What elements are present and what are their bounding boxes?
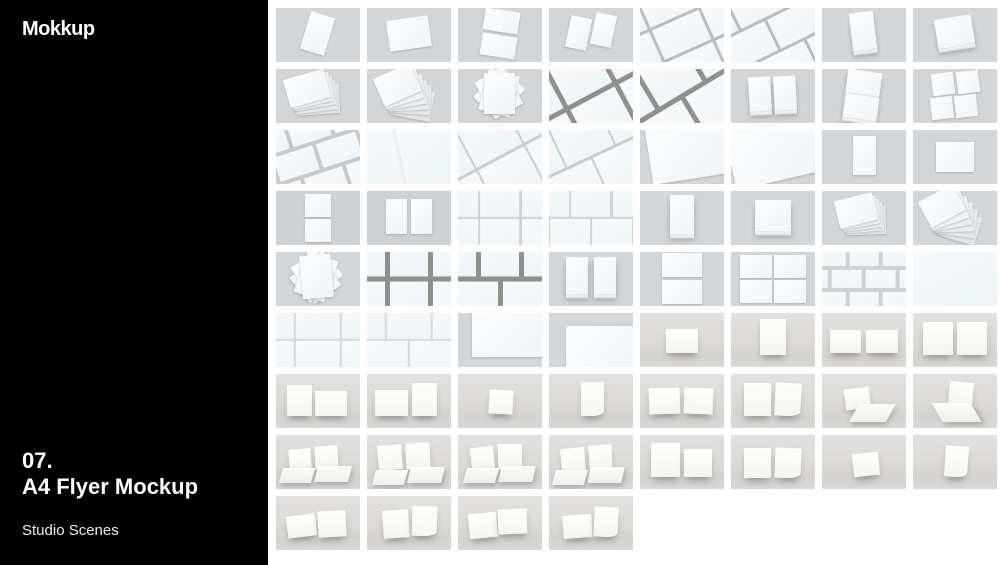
mockup-thumbnail[interactable]	[640, 130, 724, 184]
paper-sheet	[483, 8, 521, 35]
mockup-thumbnail[interactable]	[640, 8, 724, 62]
paper-sheet	[684, 449, 713, 477]
paper-sheet	[649, 387, 681, 415]
paper-sheet	[774, 448, 801, 479]
mockup-thumbnail[interactable]	[367, 374, 451, 428]
mockup-thumbnail[interactable]	[458, 130, 542, 184]
paper-sheet	[913, 252, 997, 306]
mockup-thumbnail[interactable]	[731, 252, 815, 306]
mockup-thumbnail[interactable]	[822, 435, 906, 489]
paper-sheet	[853, 136, 876, 175]
paper-sheet	[944, 446, 969, 478]
paper-sheet	[755, 200, 792, 231]
mockup-thumbnail[interactable]	[458, 435, 542, 489]
sheet-grid	[276, 313, 360, 367]
paper-sheet	[929, 95, 953, 119]
mockup-thumbnail[interactable]	[731, 191, 815, 245]
mockup-thumbnail[interactable]	[367, 435, 451, 489]
paper-sheet	[299, 12, 334, 57]
paper-sheet	[462, 468, 499, 483]
mockup-thumbnail[interactable]	[731, 374, 815, 428]
mockup-thumbnail[interactable]	[913, 69, 997, 123]
mockup-thumbnail[interactable]	[458, 191, 542, 245]
paper-sheet	[470, 446, 495, 471]
mockup-thumbnail[interactable]	[549, 374, 633, 428]
paper-sheet	[954, 94, 978, 118]
paper-sheet	[407, 467, 444, 483]
mockup-thumbnail[interactable]	[640, 374, 724, 428]
mockup-thumbnail[interactable]	[458, 496, 542, 550]
paper-sheet	[375, 390, 409, 416]
paper-sheet	[484, 73, 515, 115]
paper-sheet	[830, 330, 862, 353]
mockup-thumbnail[interactable]	[913, 313, 997, 367]
mockup-thumbnail[interactable]	[640, 69, 724, 123]
mockup-thumbnail[interactable]	[276, 191, 360, 245]
mockup-thumbnail[interactable]	[913, 191, 997, 245]
mockup-thumbnail[interactable]	[731, 130, 815, 184]
page-subtitle: Studio Scenes	[22, 522, 198, 539]
mockup-thumbnail[interactable]	[913, 8, 997, 62]
mockup-thumbnail[interactable]	[913, 252, 997, 306]
paper-sheet	[740, 255, 772, 278]
sheet-grid	[549, 191, 633, 245]
mockup-thumbnail[interactable]	[549, 8, 633, 62]
paper-sheet	[498, 508, 528, 534]
mockup-thumbnail[interactable]	[640, 252, 724, 306]
paper-sheet	[931, 72, 955, 96]
paper-sheet	[852, 452, 880, 477]
mockup-thumbnail[interactable]	[276, 252, 360, 306]
mockup-thumbnail[interactable]	[549, 313, 633, 367]
paper-sheet	[382, 509, 410, 539]
mockup-thumbnail[interactable]	[822, 8, 906, 62]
mockup-thumbnail[interactable]	[276, 69, 360, 123]
paper-sheet	[588, 467, 625, 483]
sheet-grid	[549, 130, 633, 184]
paper-sheet	[923, 322, 953, 355]
mockup-thumbnail[interactable]	[549, 69, 633, 123]
paper-sheet	[849, 10, 877, 50]
paper-sheet	[560, 447, 585, 472]
paper-sheet	[565, 15, 592, 51]
paper-sheet	[299, 254, 334, 299]
mockup-thumbnail[interactable]	[640, 435, 724, 489]
paper-sheet	[498, 443, 522, 469]
paper-sheet	[315, 391, 346, 416]
paper-sheet	[590, 12, 617, 48]
paper-sheet	[552, 470, 588, 485]
paper-sheet	[372, 470, 408, 485]
paper-sheet	[581, 382, 604, 416]
mockup-thumbnail[interactable]	[731, 313, 815, 367]
paper-sheet	[644, 130, 724, 184]
paper-sheet	[594, 506, 619, 537]
paper-sheet	[563, 514, 593, 539]
paper-sheet	[936, 142, 975, 171]
paper-sheet	[589, 444, 613, 469]
paper-sheet	[931, 403, 981, 422]
paper-sheet	[773, 75, 797, 110]
paper-sheet	[498, 466, 535, 482]
paper-sheet	[412, 506, 438, 537]
paper-sheet	[662, 253, 702, 277]
paper-sheet	[472, 313, 542, 357]
paper-sheet	[934, 14, 975, 49]
mockup-thumbnail[interactable]	[822, 313, 906, 367]
mockup-thumbnail[interactable]	[276, 130, 360, 184]
paper-sheet	[488, 390, 514, 415]
paper-sheet	[279, 468, 316, 483]
paper-sheet	[760, 319, 785, 355]
paper-sheet	[468, 511, 498, 539]
paper-sheet	[305, 194, 332, 217]
sheet-grid	[549, 69, 633, 123]
paper-sheet	[411, 199, 432, 234]
mockup-gallery	[276, 8, 997, 550]
sidebar: Mokkup 07. A4 Flyer Mockup Studio Scenes	[0, 0, 268, 565]
mockup-thumbnail[interactable]	[913, 435, 997, 489]
brand-logo: Mokkup	[22, 18, 95, 41]
paper-sheet	[594, 257, 617, 294]
paper-sheet	[744, 448, 772, 478]
mockup-thumbnail[interactable]	[367, 130, 451, 184]
sheet-grid	[731, 8, 815, 62]
mockup-thumbnail[interactable]	[458, 69, 542, 123]
paper-sheet	[683, 388, 713, 415]
mockup-thumbnail[interactable]	[458, 252, 542, 306]
paper-sheet	[957, 322, 987, 355]
paper-sheet	[286, 514, 317, 539]
paper-sheet	[748, 77, 772, 112]
mockup-thumbnail[interactable]	[822, 191, 906, 245]
paper-sheet	[406, 442, 431, 469]
mockup-thumbnail[interactable]	[367, 191, 451, 245]
paper-sheet	[774, 383, 802, 417]
sheet-grid	[640, 8, 724, 62]
paper-sheet	[317, 510, 346, 537]
mockup-thumbnail[interactable]	[549, 496, 633, 550]
paper-sheet	[670, 195, 694, 234]
paper-sheet	[651, 443, 680, 476]
section-number: 07.	[22, 448, 198, 474]
mockup-thumbnail[interactable]	[549, 130, 633, 184]
paper-sheet	[744, 383, 772, 416]
title-block: 07. A4 Flyer Mockup Studio Scenes	[22, 448, 198, 539]
mockup-thumbnail[interactable]	[640, 191, 724, 245]
paper-sheet	[386, 199, 407, 234]
sheet-grid	[458, 252, 542, 306]
mockup-thumbnail[interactable]	[731, 69, 815, 123]
mockup-thumbnail[interactable]	[549, 435, 633, 489]
mockup-thumbnail[interactable]	[913, 130, 997, 184]
sheet-grid	[367, 252, 451, 306]
mockup-thumbnail[interactable]	[458, 374, 542, 428]
mockup-thumbnail[interactable]	[367, 252, 451, 306]
paper-sheet	[377, 444, 403, 471]
mockup-thumbnail[interactable]	[458, 313, 542, 367]
page-title: A4 Flyer Mockup	[22, 474, 198, 500]
mockup-thumbnail[interactable]	[276, 374, 360, 428]
sheet-grid	[640, 69, 724, 123]
mockup-thumbnail[interactable]	[640, 313, 724, 367]
mockup-thumbnail[interactable]	[276, 8, 360, 62]
paper-sheet	[479, 32, 517, 59]
mockup-thumbnail[interactable]	[276, 435, 360, 489]
paper-sheet	[955, 70, 979, 94]
mockup-thumbnail[interactable]	[367, 496, 451, 550]
mockup-thumbnail[interactable]	[367, 69, 451, 123]
mockup-thumbnail[interactable]	[276, 313, 360, 367]
mockup-thumbnail[interactable]	[822, 69, 906, 123]
paper-sheet	[386, 15, 432, 52]
paper-sheet	[314, 466, 352, 482]
paper-sheet	[846, 69, 883, 96]
sheet-grid	[276, 130, 360, 184]
mockup-thumbnail[interactable]	[549, 252, 633, 306]
sheet-grid	[822, 252, 906, 306]
mockup-thumbnail[interactable]	[913, 374, 997, 428]
mockup-thumbnail[interactable]	[367, 8, 451, 62]
paper-sheet	[566, 257, 589, 294]
mockup-thumbnail[interactable]	[822, 252, 906, 306]
mockup-thumbnail[interactable]	[276, 496, 360, 550]
paper-sheet	[774, 255, 806, 278]
paper-sheet	[666, 329, 698, 353]
paper-sheet	[842, 94, 879, 121]
sheet-grid	[458, 130, 542, 184]
mockup-thumbnail[interactable]	[549, 191, 633, 245]
sheet-grid	[458, 191, 542, 245]
paper-sheet	[774, 280, 806, 303]
mockup-thumbnail[interactable]	[367, 313, 451, 367]
sheet-grid	[367, 313, 451, 367]
mockup-thumbnail[interactable]	[731, 435, 815, 489]
paper-sheet	[740, 280, 772, 303]
mockup-thumbnail[interactable]	[822, 374, 906, 428]
paper-sheet	[662, 280, 702, 304]
mockup-thumbnail[interactable]	[458, 8, 542, 62]
paper-sheet	[566, 326, 633, 367]
paper-sheet	[731, 130, 815, 184]
paper-sheet	[305, 219, 332, 242]
paper-sheet	[866, 330, 898, 353]
paper-sheet	[287, 385, 312, 416]
mockup-thumbnail[interactable]	[731, 8, 815, 62]
mockup-thumbnail[interactable]	[822, 130, 906, 184]
paper-sheet	[412, 383, 436, 416]
